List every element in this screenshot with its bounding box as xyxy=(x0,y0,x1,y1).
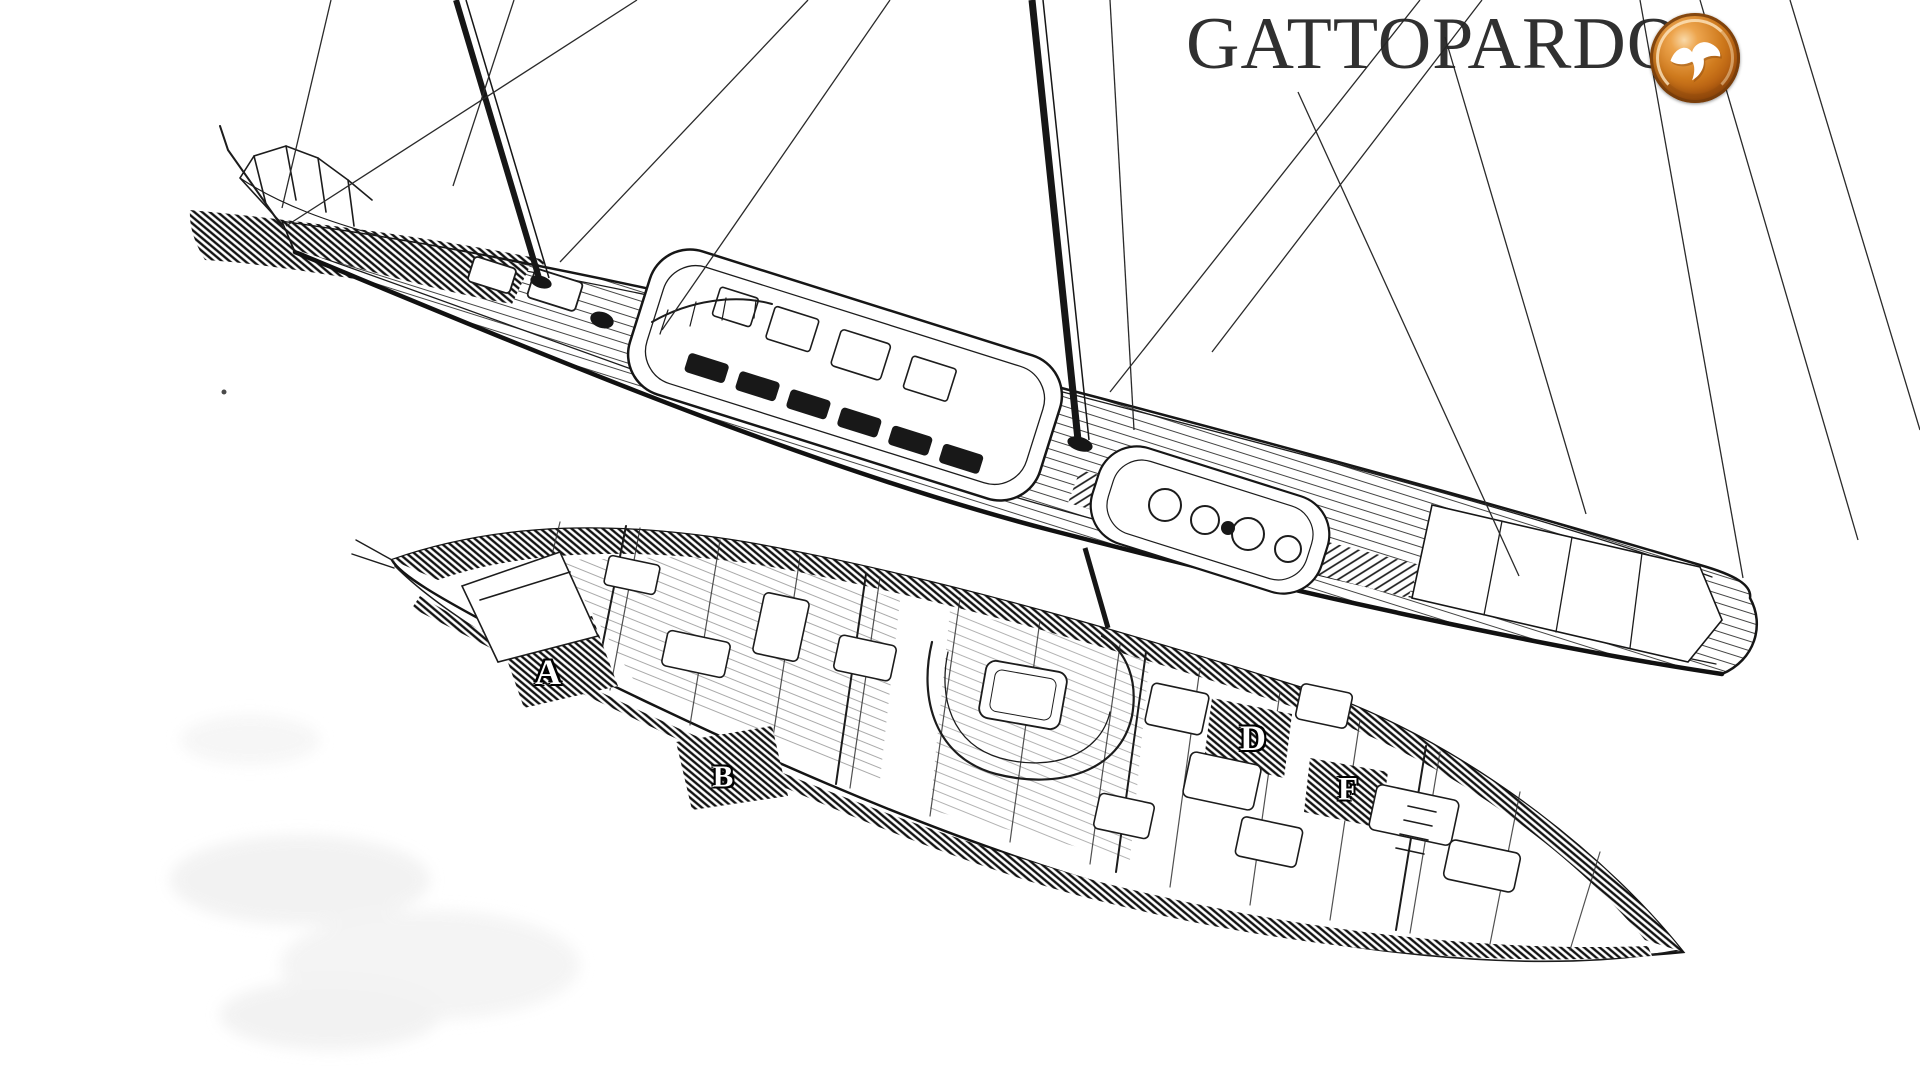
yacht-diagram-page: GATTOPARDO A B D F xyxy=(0,0,1920,1081)
deckhouse xyxy=(617,239,1072,511)
seagull-icon xyxy=(1659,22,1731,94)
brand-title: GATTOPARDO xyxy=(1186,2,1681,87)
scan-smudges xyxy=(170,715,580,1050)
brand-logo xyxy=(1650,13,1740,103)
compartment-label-d: D xyxy=(1240,720,1266,756)
scan-dot xyxy=(222,390,227,395)
compartment-label-b: B xyxy=(713,761,734,792)
compartment-label-a: A xyxy=(535,654,561,690)
yacht-diagram-illustration xyxy=(0,0,1920,1081)
compartment-label-f: F xyxy=(1338,774,1358,807)
helm-pedestal xyxy=(1221,521,1235,535)
